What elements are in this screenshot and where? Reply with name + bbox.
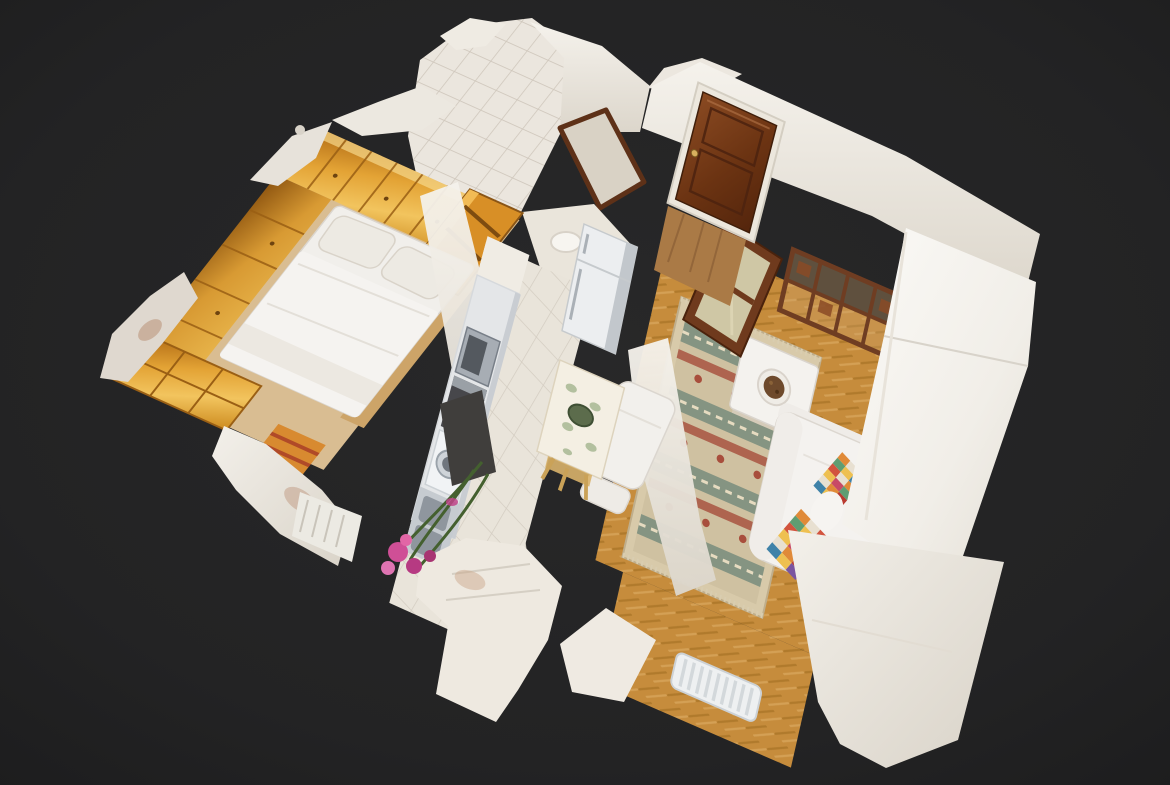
- flower: [400, 534, 412, 546]
- flower: [406, 558, 422, 574]
- washbasin: [551, 232, 581, 252]
- flower: [381, 561, 395, 575]
- apartment-3d-model: [0, 0, 1170, 785]
- flower: [446, 498, 458, 506]
- flower: [424, 550, 436, 562]
- dollhouse-3d-viewport[interactable]: [0, 0, 1170, 785]
